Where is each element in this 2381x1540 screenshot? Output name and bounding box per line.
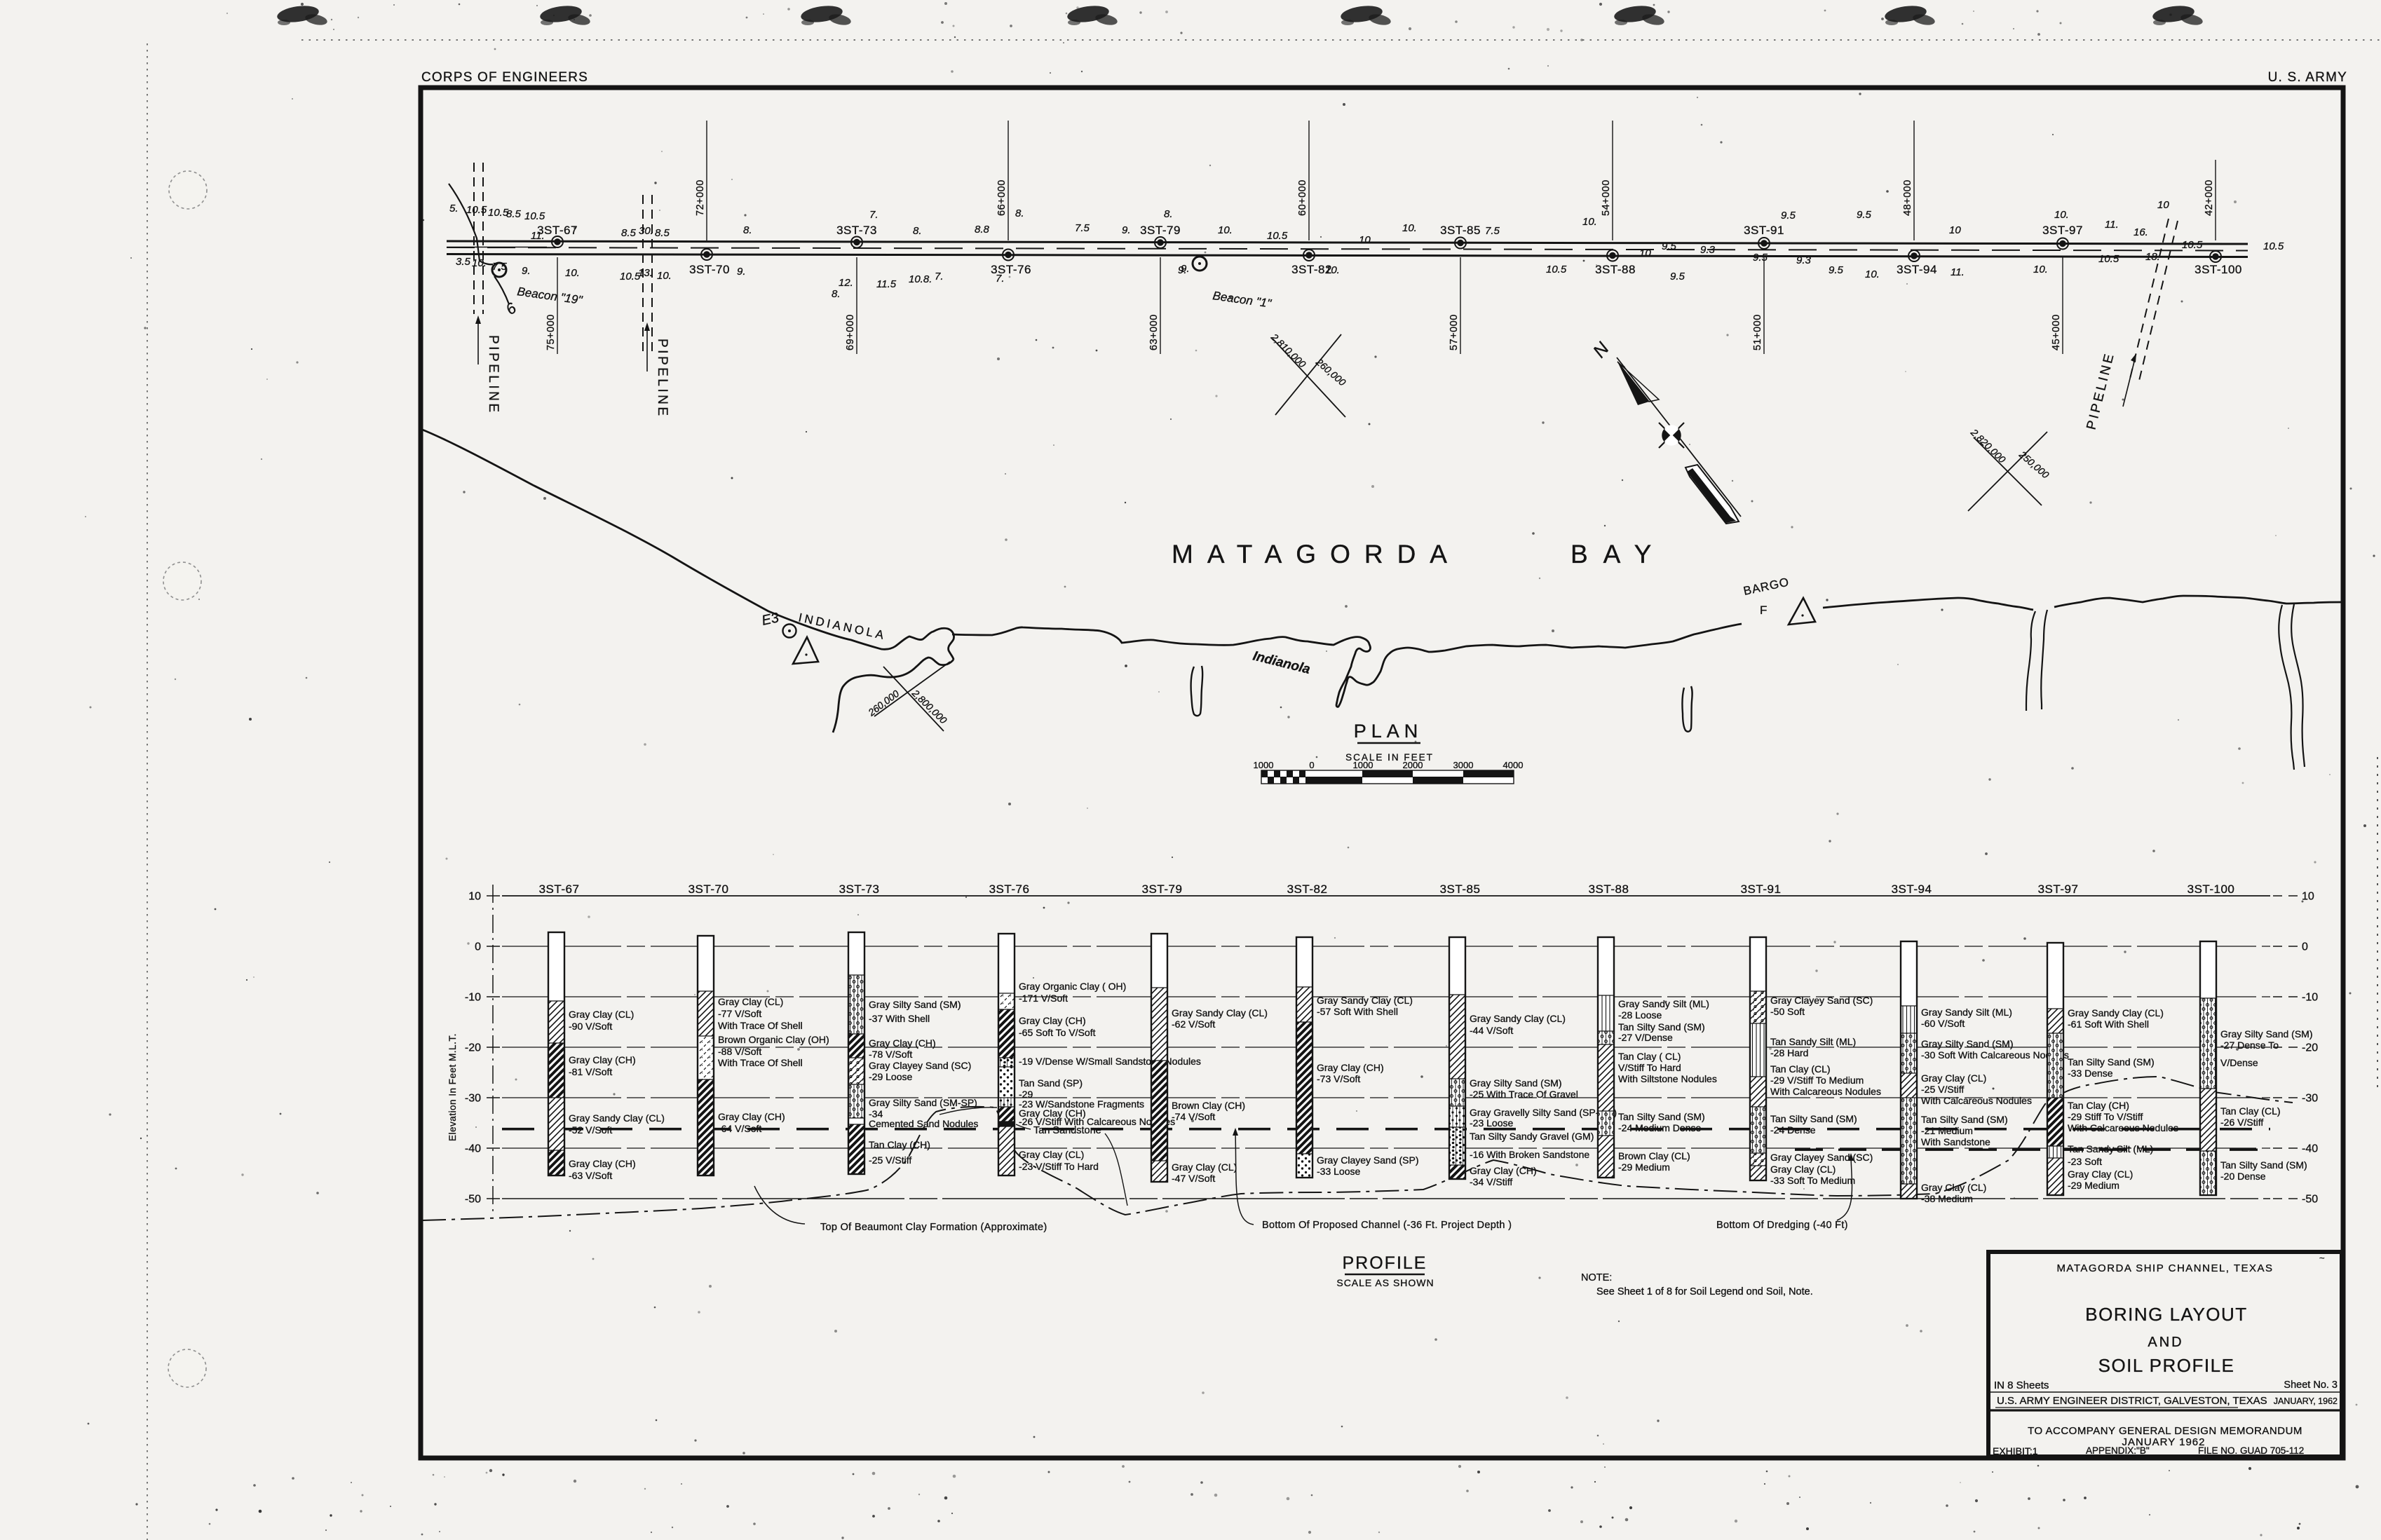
svg-text:11.: 11. xyxy=(531,230,545,242)
svg-text:9.5: 9.5 xyxy=(1662,240,1677,252)
svg-text:-65 Soft To V/Soft: -65 Soft To V/Soft xyxy=(1019,1027,1096,1038)
svg-text:Gray Clay (CL): Gray Clay (CL) xyxy=(1770,1164,1836,1175)
svg-text:10.5: 10.5 xyxy=(466,204,487,216)
svg-text:Tan Sandstone: Tan Sandstone xyxy=(1033,1125,1101,1136)
svg-text:Tan Silty Sand (SM): Tan Silty Sand (SM) xyxy=(2068,1056,2155,1068)
svg-text:-38 Medium: -38 Medium xyxy=(1921,1193,1973,1204)
svg-text:PIPELINE: PIPELINE xyxy=(655,339,670,418)
svg-text:10.: 10. xyxy=(2054,209,2069,221)
svg-text:3ST-91: 3ST-91 xyxy=(1741,883,1782,896)
svg-text:1000: 1000 xyxy=(1254,760,1274,770)
svg-text:63+000: 63+000 xyxy=(1148,314,1160,350)
svg-text:IN 8 Sheets: IN 8 Sheets xyxy=(1994,1379,2049,1391)
svg-text:Gray Clay (CH): Gray Clay (CH) xyxy=(1019,1015,1086,1026)
svg-text:9.5: 9.5 xyxy=(1781,210,1796,222)
svg-text:10.: 10. xyxy=(1402,222,1417,234)
svg-text:-23 Soft: -23 Soft xyxy=(2068,1156,2102,1167)
svg-text:Bottom Of Dredging (-40 Ft): Bottom Of Dredging (-40 Ft) xyxy=(1716,1220,1848,1231)
svg-text:3ST-70: 3ST-70 xyxy=(688,883,729,896)
svg-text:-78 V/Soft: -78 V/Soft xyxy=(869,1049,912,1060)
svg-text:10: 10 xyxy=(2157,199,2169,211)
svg-text:PROFILE: PROFILE xyxy=(1343,1253,1427,1273)
svg-text:Tan Silty Sand (SM): Tan Silty Sand (SM) xyxy=(1618,1111,1705,1122)
svg-text:Gray Sandy Silt (ML): Gray Sandy Silt (ML) xyxy=(1618,998,1709,1009)
svg-text:18.: 18. xyxy=(2145,251,2160,263)
svg-text:Gray Clay (CH): Gray Clay (CH) xyxy=(1470,1165,1537,1176)
svg-text:-50: -50 xyxy=(465,1194,481,1206)
svg-text:Top Of Beaumont Clay Forma: Top Of Beaumont Clay Formation (Approxim… xyxy=(820,1222,1047,1233)
svg-text:-27 Dense To: -27 Dense To xyxy=(2220,1040,2279,1051)
svg-text:8.8: 8.8 xyxy=(975,224,990,236)
svg-text:See Sheet 1 of 8 for Soil L: See Sheet 1 of 8 for Soil Legend ond Soi… xyxy=(1596,1286,1813,1297)
svg-text:With Sandstone: With Sandstone xyxy=(1921,1136,1990,1147)
svg-text:Gray Sandy Clay (CL): Gray Sandy Clay (CL) xyxy=(569,1112,665,1124)
svg-text:10: 10 xyxy=(468,891,481,903)
svg-text:10.: 10. xyxy=(1218,224,1233,236)
svg-text:-47 V/Soft: -47 V/Soft xyxy=(1172,1173,1215,1184)
svg-text:Sheet No. 3: Sheet No. 3 xyxy=(2284,1379,2338,1391)
svg-text:Gray Silty Sand (SM): Gray Silty Sand (SM) xyxy=(1470,1077,1561,1089)
svg-text:~: ~ xyxy=(2319,1253,2325,1263)
svg-text:10.5: 10.5 xyxy=(524,210,545,222)
svg-text:7.: 7. xyxy=(869,209,879,221)
svg-text:10: 10 xyxy=(2302,891,2314,903)
svg-text:-50 Soft: -50 Soft xyxy=(1770,1006,1805,1017)
svg-text:10.: 10. xyxy=(1582,216,1597,228)
svg-text:66+000: 66+000 xyxy=(996,179,1008,216)
svg-text:0: 0 xyxy=(1309,760,1314,770)
svg-text:9.: 9. xyxy=(1122,224,1131,236)
svg-text:10.: 10. xyxy=(565,267,580,279)
svg-text:9.5: 9.5 xyxy=(1753,252,1768,264)
svg-text:10.: 10. xyxy=(657,270,672,282)
svg-text:Tan Clay ( CL): Tan Clay ( CL) xyxy=(1618,1051,1681,1062)
svg-text:AND: AND xyxy=(2148,1335,2183,1350)
svg-text:Gray Silty Sand (SM-SP): Gray Silty Sand (SM-SP) xyxy=(869,1097,977,1108)
svg-text:8.5: 8.5 xyxy=(506,208,522,220)
svg-text:-29 Stiff To V/Stiff: -29 Stiff To V/Stiff xyxy=(2068,1111,2143,1122)
svg-text:54+000: 54+000 xyxy=(1601,179,1612,216)
svg-text:3ST-94: 3ST-94 xyxy=(1897,263,1937,276)
svg-text:8.5: 8.5 xyxy=(621,227,637,239)
svg-text:JANUARY, 1962: JANUARY, 1962 xyxy=(2274,1396,2338,1406)
svg-text:Gray Clay (CL): Gray Clay (CL) xyxy=(1172,1161,1237,1173)
svg-text:-57 Soft With Shell: -57 Soft With Shell xyxy=(1317,1006,1398,1017)
svg-text:-24 Medium Dense: -24 Medium Dense xyxy=(1618,1122,1701,1133)
svg-text:10.: 10. xyxy=(1325,264,1340,276)
svg-text:PLAN: PLAN xyxy=(1354,721,1423,742)
svg-text:42+000: 42+000 xyxy=(2204,179,2215,216)
svg-text:-25 With Trace Of Gravel: -25 With Trace Of Gravel xyxy=(1470,1089,1578,1100)
svg-text:-20: -20 xyxy=(2302,1042,2318,1054)
svg-text:Gray Clay (CH): Gray Clay (CH) xyxy=(569,1158,636,1169)
svg-text:With Trace Of Shell: With Trace Of Shell xyxy=(718,1057,803,1068)
svg-text:-33 Loose: -33 Loose xyxy=(1317,1166,1360,1177)
svg-text:BORING LAYOUT: BORING LAYOUT xyxy=(2085,1304,2247,1325)
svg-text:MATAGORDA: MATAGORDA xyxy=(1172,540,1461,568)
svg-text:1000: 1000 xyxy=(1353,760,1373,770)
svg-text:-29 Loose: -29 Loose xyxy=(869,1071,912,1082)
svg-text:APPENDIX:"B": APPENDIX:"B" xyxy=(2086,1445,2150,1456)
svg-text:8.: 8. xyxy=(913,225,922,237)
svg-text:10.: 10. xyxy=(2033,264,2048,275)
svg-text:-74 V/Soft: -74 V/Soft xyxy=(1172,1111,1215,1122)
svg-text:TO ACCOMPANY GENERAL DESIGN: TO ACCOMPANY GENERAL DESIGN MEMORANDUM xyxy=(2028,1425,2302,1437)
svg-text:10.5: 10.5 xyxy=(1546,264,1567,275)
svg-text:NOTE:: NOTE: xyxy=(1581,1272,1612,1283)
svg-text:-40: -40 xyxy=(465,1143,481,1155)
svg-text:30.: 30. xyxy=(639,225,653,237)
svg-text:CORPS OF ENGINEERS: CORPS OF ENGINEERS xyxy=(421,70,588,85)
svg-text:10.5: 10.5 xyxy=(1267,230,1288,242)
svg-text:With Trace Of Shell: With Trace Of Shell xyxy=(718,1020,803,1031)
svg-text:10.: 10. xyxy=(1639,247,1654,259)
svg-text:Gray Sandy Clay (CL): Gray Sandy Clay (CL) xyxy=(2068,1007,2164,1018)
svg-text:-63 V/Soft: -63 V/Soft xyxy=(569,1170,612,1181)
svg-text:-88 V/Soft: -88 V/Soft xyxy=(718,1046,761,1057)
svg-text:EXHIBIT:1: EXHIBIT:1 xyxy=(1993,1445,2038,1457)
svg-text:9.5: 9.5 xyxy=(1829,264,1844,276)
svg-text:With Calcareous Nodules: With Calcareous Nodules xyxy=(2068,1122,2178,1133)
svg-text:-29 Medium: -29 Medium xyxy=(2068,1180,2119,1191)
svg-text:11.5: 11.5 xyxy=(876,278,897,290)
svg-text:3ST-88: 3ST-88 xyxy=(1595,263,1636,276)
svg-text:10: 10 xyxy=(1949,224,1961,236)
svg-text:PIPELINE: PIPELINE xyxy=(486,335,501,415)
svg-text:3ST-85: 3ST-85 xyxy=(1440,883,1481,896)
svg-text:75+000: 75+000 xyxy=(545,314,557,350)
svg-text:-26 V/Stiff: -26 V/Stiff xyxy=(2220,1117,2263,1128)
svg-text:8.: 8. xyxy=(1164,208,1173,220)
svg-text:-171 V/Soft: -171 V/Soft xyxy=(1019,993,1068,1004)
svg-text:10: 10 xyxy=(1359,234,1371,246)
svg-text:Gray Silty Sand (SM): Gray Silty Sand (SM) xyxy=(869,999,961,1010)
svg-text:BAY: BAY xyxy=(1571,540,1667,568)
svg-text:3ST-97: 3ST-97 xyxy=(2042,224,2083,237)
svg-text:Brown Clay (CL): Brown Clay (CL) xyxy=(1618,1150,1690,1161)
svg-text:-16 With Broken Sandstone: -16 With Broken Sandstone xyxy=(1470,1149,1589,1160)
svg-text:3ST-94: 3ST-94 xyxy=(1892,883,1932,896)
svg-text:Gray Clay (CH): Gray Clay (CH) xyxy=(1317,1062,1384,1073)
svg-text:-62 V/Soft: -62 V/Soft xyxy=(1172,1018,1215,1030)
svg-text:-23 V/Stiff To Hard: -23 V/Stiff To Hard xyxy=(1019,1161,1099,1172)
svg-text:8.5: 8.5 xyxy=(655,227,670,239)
svg-text:Tan Silty Sandy Gravel (GM): Tan Silty Sandy Gravel (GM) xyxy=(1470,1131,1594,1142)
svg-text:3.5: 3.5 xyxy=(456,256,471,268)
svg-text:Tan Silty Sand (SM): Tan Silty Sand (SM) xyxy=(2220,1159,2307,1171)
svg-text:-64 V/Soft: -64 V/Soft xyxy=(718,1123,761,1134)
svg-text:Gray Silty Sand (SM): Gray Silty Sand (SM) xyxy=(2220,1028,2312,1040)
svg-text:-10: -10 xyxy=(465,992,481,1004)
svg-text:Gray Sandy Clay (CL): Gray Sandy Clay (CL) xyxy=(1470,1013,1566,1024)
svg-text:Tan Silty Sand (SM): Tan Silty Sand (SM) xyxy=(1618,1021,1705,1033)
svg-text:-19 V/Dense W/Small Sandstone: -19 V/Dense W/Small Sandstone Nodules xyxy=(1019,1056,1201,1067)
svg-text:57+000: 57+000 xyxy=(1449,314,1460,350)
svg-text:Gray Clay (CL): Gray Clay (CL) xyxy=(1921,1072,1986,1084)
svg-text:-20 Dense: -20 Dense xyxy=(2220,1171,2266,1182)
svg-text:-40: -40 xyxy=(2302,1143,2318,1155)
svg-text:FILE NO. GUAD 705-112: FILE NO. GUAD 705-112 xyxy=(2198,1445,2304,1456)
svg-text:Gray Clay (CH): Gray Clay (CH) xyxy=(569,1054,636,1065)
svg-text:9.5: 9.5 xyxy=(1670,271,1685,282)
svg-text:Gray Clayey Sand (SC): Gray Clayey Sand (SC) xyxy=(1770,995,1873,1006)
svg-text:Gray Sandy Silt (ML): Gray Sandy Silt (ML) xyxy=(1921,1007,2012,1018)
svg-text:3ST-73: 3ST-73 xyxy=(839,883,880,896)
svg-text:With Siltstone Nodules: With Siltstone Nodules xyxy=(1618,1073,1717,1084)
svg-text:SCALE AS SHOWN: SCALE AS SHOWN xyxy=(1336,1277,1434,1288)
svg-text:3ST-100: 3ST-100 xyxy=(2195,263,2242,276)
svg-text:45+000: 45+000 xyxy=(2051,314,2062,350)
svg-text:0: 0 xyxy=(2302,941,2308,953)
svg-text:-44 V/Soft: -44 V/Soft xyxy=(1470,1025,1513,1036)
svg-text:-20: -20 xyxy=(465,1042,481,1054)
svg-text:48+000: 48+000 xyxy=(1902,179,1913,216)
svg-text:-60 V/Soft: -60 V/Soft xyxy=(1921,1018,1965,1029)
svg-text:Gray Clay (CL): Gray Clay (CL) xyxy=(2068,1168,2133,1180)
svg-text:Tan Sandy Silt (ML): Tan Sandy Silt (ML) xyxy=(2068,1143,2153,1154)
svg-text:3ST-82: 3ST-82 xyxy=(1287,883,1328,896)
svg-text:-34 V/Stiff: -34 V/Stiff xyxy=(1470,1176,1512,1187)
svg-text:3ST-88: 3ST-88 xyxy=(1589,883,1629,896)
svg-text:3ST-73: 3ST-73 xyxy=(836,224,877,237)
svg-text:9.3: 9.3 xyxy=(1700,244,1716,256)
svg-text:7.5: 7.5 xyxy=(1485,225,1500,237)
svg-text:-90 V/Soft: -90 V/Soft xyxy=(569,1021,612,1032)
svg-text:-25 V/Stiff: -25 V/Stiff xyxy=(869,1154,911,1166)
svg-text:72+000: 72+000 xyxy=(695,179,706,216)
svg-text:Gray Sandy Clay (CL): Gray Sandy Clay (CL) xyxy=(1317,995,1413,1006)
svg-text:-24 Dense: -24 Dense xyxy=(1770,1124,1816,1136)
svg-text:V/Stiff To Hard: V/Stiff To Hard xyxy=(1618,1062,1681,1073)
svg-text:Gray Clayey Sand (SP): Gray Clayey Sand (SP) xyxy=(1317,1154,1419,1166)
svg-text:Brown Clay (CH): Brown Clay (CH) xyxy=(1172,1100,1245,1111)
svg-text:7.: 7. xyxy=(996,273,1005,285)
svg-text:Gray Organic Clay ( OH): Gray Organic Clay ( OH) xyxy=(1019,981,1126,992)
svg-text:8.: 8. xyxy=(743,224,752,236)
svg-text:10.8.: 10.8. xyxy=(909,273,932,285)
svg-text:9.: 9. xyxy=(737,266,746,278)
svg-text:Gray Clayey Sand (SC): Gray Clayey Sand (SC) xyxy=(869,1060,971,1071)
svg-text:2000: 2000 xyxy=(1403,760,1423,770)
svg-text:3ST-67: 3ST-67 xyxy=(539,883,580,896)
svg-text:-33 Soft To Medium: -33 Soft To Medium xyxy=(1770,1175,1855,1186)
svg-text:Gray Clay (CH): Gray Clay (CH) xyxy=(718,1111,785,1122)
svg-text:60+000: 60+000 xyxy=(1297,179,1308,216)
svg-text:SOIL PROFILE: SOIL PROFILE xyxy=(2098,1355,2235,1376)
svg-text:3000: 3000 xyxy=(1453,760,1474,770)
svg-text:10.5: 10.5 xyxy=(2182,239,2203,251)
svg-text:Tan Clay (CH): Tan Clay (CH) xyxy=(2068,1100,2129,1111)
svg-text:51+000: 51+000 xyxy=(1752,314,1763,350)
svg-text:Tan Silty Sand (SM): Tan Silty Sand (SM) xyxy=(1921,1114,2008,1125)
svg-text:9.: 9. xyxy=(522,265,531,277)
svg-text:3ST-97: 3ST-97 xyxy=(2038,883,2079,896)
svg-text:-50: -50 xyxy=(2302,1194,2318,1206)
svg-text:-30: -30 xyxy=(465,1093,481,1105)
svg-text:Tan Clay (CH): Tan Clay (CH) xyxy=(869,1139,930,1150)
svg-text:12.: 12. xyxy=(839,277,853,289)
svg-text:-10: -10 xyxy=(2302,992,2318,1004)
svg-text:-81 V/Soft: -81 V/Soft xyxy=(569,1066,612,1077)
svg-text:13.: 13. xyxy=(638,267,653,279)
svg-text:-37 With Shell: -37 With Shell xyxy=(869,1013,930,1024)
svg-text:MATAGORDA SHIP CHANNEL, TE: MATAGORDA SHIP CHANNEL, TEXAS xyxy=(2056,1262,2273,1274)
svg-text:Gray Gravelly Silty Sand (SP-: Gray Gravelly Silty Sand (SP-SM) xyxy=(1470,1107,1617,1118)
svg-text:10.5: 10.5 xyxy=(2263,240,2284,252)
svg-text:11.: 11. xyxy=(1951,266,1965,278)
svg-text:F: F xyxy=(1760,604,1767,617)
svg-text:0: 0 xyxy=(475,941,481,953)
svg-text:Tan Silty Sand (SM): Tan Silty Sand (SM) xyxy=(1770,1113,1857,1124)
svg-text:-77 V/Soft: -77 V/Soft xyxy=(718,1008,761,1019)
svg-text:Gray Clay (CH): Gray Clay (CH) xyxy=(869,1037,936,1049)
svg-text:9.: 9. xyxy=(1178,264,1187,276)
svg-text:V/Dense: V/Dense xyxy=(2220,1057,2258,1068)
svg-text:10.5: 10.5 xyxy=(2098,253,2119,265)
svg-text:11.: 11. xyxy=(2105,219,2119,231)
svg-text:U. S. ARMY: U. S. ARMY xyxy=(2268,70,2347,85)
svg-text:3ST-100: 3ST-100 xyxy=(2187,883,2235,896)
svg-text:3ST-79: 3ST-79 xyxy=(1142,883,1183,896)
svg-text:Brown Organic Clay (OH): Brown Organic Clay (OH) xyxy=(718,1034,829,1045)
svg-text:3ST-76: 3ST-76 xyxy=(989,883,1030,896)
svg-text:Gray Clay (CL): Gray Clay (CL) xyxy=(1921,1182,1986,1193)
svg-text:Tan Clay (CL): Tan Clay (CL) xyxy=(1770,1063,1831,1075)
svg-text:Cemented Sand Nodules: Cemented Sand Nodules xyxy=(869,1118,978,1129)
svg-text:With Calcareous Nodules: With Calcareous Nodules xyxy=(1921,1095,2032,1106)
svg-text:Bottom Of Proposed Channel: Bottom Of Proposed Channel (-36 Ft. Proj… xyxy=(1262,1220,1512,1231)
svg-text:-73 V/Soft: -73 V/Soft xyxy=(1317,1073,1360,1084)
svg-text:69+000: 69+000 xyxy=(845,314,856,350)
svg-text:10.: 10. xyxy=(1865,268,1880,280)
svg-text:Gray Silty Sand (SM): Gray Silty Sand (SM) xyxy=(1921,1038,2013,1049)
svg-text:9.5: 9.5 xyxy=(1857,209,1872,221)
svg-text:-33 Dense: -33 Dense xyxy=(2068,1068,2113,1079)
svg-text:-61 Soft With Shell: -61 Soft With Shell xyxy=(2068,1018,2149,1030)
svg-text:-23 Loose: -23 Loose xyxy=(1470,1117,1513,1129)
svg-text:-25 V/Stiff: -25 V/Stiff xyxy=(1921,1084,1964,1095)
svg-text:3ST-79: 3ST-79 xyxy=(1140,224,1181,237)
svg-text:-29 V/Stiff To Medium: -29 V/Stiff To Medium xyxy=(1770,1075,1864,1086)
svg-text:-29 Medium: -29 Medium xyxy=(1618,1161,1670,1173)
svg-text:Gray Clay (CL): Gray Clay (CL) xyxy=(1019,1149,1084,1160)
svg-text:With Calcareous Nodules: With Calcareous Nodules xyxy=(1770,1086,1881,1097)
svg-text:Gray Clay (CL): Gray Clay (CL) xyxy=(569,1009,634,1020)
svg-text:3ST-91: 3ST-91 xyxy=(1744,224,1784,237)
svg-text:Gray Clayey Sand (SC): Gray Clayey Sand (SC) xyxy=(1770,1152,1873,1163)
svg-text:Tan Sandy Silt (ML): Tan Sandy Silt (ML) xyxy=(1770,1036,1856,1047)
svg-text:4000: 4000 xyxy=(1503,760,1524,770)
svg-text:9.3: 9.3 xyxy=(1796,254,1812,266)
svg-text:Gray Sandy Clay (CL): Gray Sandy Clay (CL) xyxy=(1172,1007,1268,1018)
svg-text:-27 V/Dense: -27 V/Dense xyxy=(1618,1032,1673,1043)
svg-text:Gray Clay (CL): Gray Clay (CL) xyxy=(718,996,783,1007)
svg-text:3ST-70: 3ST-70 xyxy=(689,263,730,276)
svg-text:-28 Loose: -28 Loose xyxy=(1618,1009,1662,1021)
svg-text:7.: 7. xyxy=(935,271,944,282)
svg-text:16.: 16. xyxy=(2134,226,2148,238)
svg-text:Tan Sand (SP): Tan Sand (SP) xyxy=(1019,1077,1083,1089)
svg-text:3ST-85: 3ST-85 xyxy=(1440,224,1481,237)
svg-text:-30: -30 xyxy=(2302,1093,2318,1105)
svg-text:-21 Medium: -21 Medium xyxy=(1921,1125,1973,1136)
svg-text:Elevation In Feet M.L.T.: Elevation In Feet M.L.T. xyxy=(447,1033,458,1141)
svg-text:8.: 8. xyxy=(832,288,841,300)
svg-text:7.5: 7.5 xyxy=(1075,222,1090,234)
svg-text:8.: 8. xyxy=(1015,207,1024,219)
svg-text:Tan Clay (CL): Tan Clay (CL) xyxy=(2220,1105,2281,1117)
svg-text:-28 Hard: -28 Hard xyxy=(1770,1047,1808,1058)
svg-text:-52 V/Soft: -52 V/Soft xyxy=(569,1124,612,1136)
svg-text:5.: 5. xyxy=(449,203,459,214)
svg-text:U.S. ARMY ENGINEER DISTRICT: U.S. ARMY ENGINEER DISTRICT, GALVESTON, … xyxy=(1997,1395,2267,1407)
